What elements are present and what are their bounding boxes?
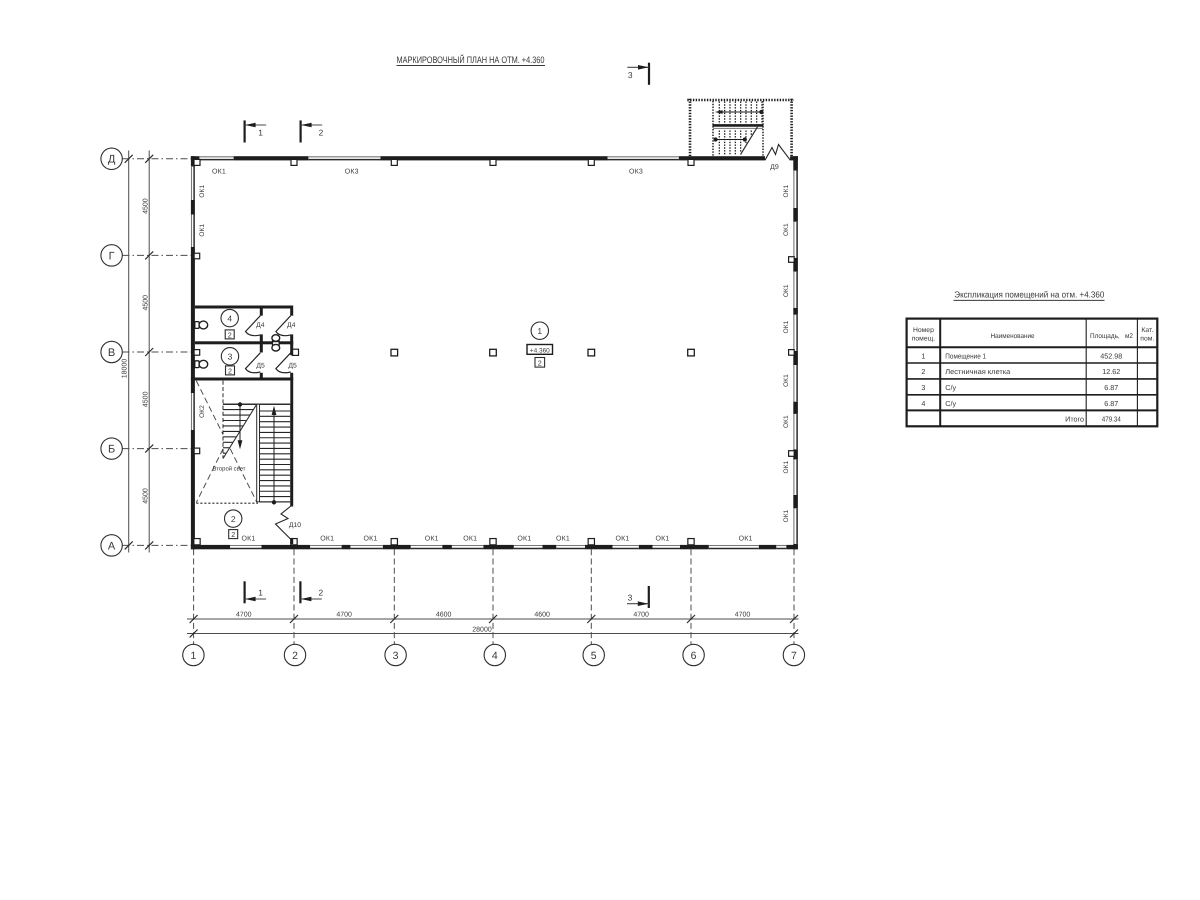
svg-text:1: 1 xyxy=(537,326,542,336)
svg-text:3: 3 xyxy=(921,383,925,392)
svg-text:ОК1: ОК1 xyxy=(783,284,790,297)
svg-text:4: 4 xyxy=(492,650,498,662)
svg-text:МАРКИРОВОЧНЫЙ ПЛАН НА ОТМ. +4.: МАРКИРОВОЧНЫЙ ПЛАН НА ОТМ. +4.360 xyxy=(397,54,545,65)
svg-text:ОК1: ОК1 xyxy=(783,223,790,236)
svg-text:ОК3: ОК3 xyxy=(345,169,359,176)
svg-text:Номер: Номер xyxy=(913,327,934,334)
svg-text:ОК1: ОК1 xyxy=(425,535,439,542)
svg-text:ОК1: ОК1 xyxy=(199,185,206,198)
svg-text:ОК1: ОК1 xyxy=(363,535,377,542)
svg-text:18000: 18000 xyxy=(121,359,128,379)
svg-text:4: 4 xyxy=(921,399,925,408)
svg-text:12.62: 12.62 xyxy=(1102,367,1120,376)
svg-text:ОК1: ОК1 xyxy=(739,535,753,542)
svg-text:4500: 4500 xyxy=(142,488,149,504)
svg-text:3: 3 xyxy=(628,70,633,80)
svg-text:2: 2 xyxy=(292,650,298,662)
svg-text:2: 2 xyxy=(538,358,542,367)
svg-text:4500: 4500 xyxy=(142,391,149,407)
svg-text:2: 2 xyxy=(318,588,323,598)
svg-text:С/у: С/у xyxy=(945,383,956,392)
svg-text:пом.: пом. xyxy=(1140,335,1154,342)
svg-text:4500: 4500 xyxy=(142,295,149,311)
svg-text:479.34: 479.34 xyxy=(1102,414,1121,423)
svg-text:28000: 28000 xyxy=(472,627,492,634)
svg-text:ОК1: ОК1 xyxy=(241,535,255,542)
svg-text:А: А xyxy=(108,540,116,552)
svg-text:Лестничная клетка: Лестничная клетка xyxy=(945,367,1010,376)
svg-text:В: В xyxy=(108,347,115,359)
svg-text:4600: 4600 xyxy=(534,612,550,619)
svg-text:ОК1: ОК1 xyxy=(783,461,790,474)
svg-text:Наименование: Наименование xyxy=(991,333,1035,340)
svg-text:Б: Б xyxy=(108,444,115,456)
svg-text:ОК1: ОК1 xyxy=(212,169,226,176)
svg-text:ОК1: ОК1 xyxy=(783,374,790,387)
svg-text:2: 2 xyxy=(228,366,232,375)
svg-text:Д9: Д9 xyxy=(770,164,779,171)
svg-text:452.98: 452.98 xyxy=(1100,351,1122,360)
svg-text:ОК1: ОК1 xyxy=(783,509,790,522)
svg-text:1: 1 xyxy=(258,128,263,138)
svg-text:+4.360: +4.360 xyxy=(530,347,550,354)
svg-text:С/у: С/у xyxy=(945,399,956,408)
svg-text:3: 3 xyxy=(393,650,399,662)
svg-text:4: 4 xyxy=(227,313,232,323)
svg-text:4700: 4700 xyxy=(735,612,751,619)
svg-text:3: 3 xyxy=(228,352,233,362)
svg-text:4700: 4700 xyxy=(236,612,252,619)
svg-text:4700: 4700 xyxy=(336,612,352,619)
svg-text:Экспликация помещений на отм.: Экспликация помещений на отм. +4.360 xyxy=(954,290,1104,300)
svg-text:Д5: Д5 xyxy=(256,363,265,370)
svg-text:ОК2: ОК2 xyxy=(199,405,206,418)
svg-text:2: 2 xyxy=(319,128,324,138)
svg-text:Д: Д xyxy=(108,154,116,166)
svg-text:ОК1: ОК1 xyxy=(556,535,570,542)
svg-text:Г: Г xyxy=(109,250,115,262)
svg-text:Д4: Д4 xyxy=(287,322,296,329)
svg-text:5: 5 xyxy=(591,650,597,662)
svg-text:ОК1: ОК1 xyxy=(783,185,790,198)
svg-text:1: 1 xyxy=(258,588,263,598)
svg-text:Помещение 1: Помещение 1 xyxy=(945,351,986,360)
svg-text:ОК1: ОК1 xyxy=(463,535,477,542)
svg-text:ОК1: ОК1 xyxy=(517,535,531,542)
svg-text:Д10: Д10 xyxy=(289,522,301,529)
svg-text:ОК1: ОК1 xyxy=(655,535,669,542)
svg-text:3: 3 xyxy=(628,593,633,603)
svg-text:2: 2 xyxy=(231,514,236,524)
svg-text:4700: 4700 xyxy=(633,612,649,619)
svg-text:4600: 4600 xyxy=(436,612,452,619)
svg-text:ОК1: ОК1 xyxy=(320,535,334,542)
svg-text:ОК3: ОК3 xyxy=(629,169,643,176)
svg-text:Д5: Д5 xyxy=(288,363,297,370)
svg-text:1: 1 xyxy=(921,351,925,360)
svg-text:2: 2 xyxy=(231,530,235,539)
svg-text:1: 1 xyxy=(190,650,196,662)
svg-text:ОК1: ОК1 xyxy=(783,415,790,428)
svg-text:6.87: 6.87 xyxy=(1104,399,1118,408)
svg-text:Второй свет: Второй свет xyxy=(213,466,246,473)
svg-text:помещ.: помещ. xyxy=(912,335,936,342)
svg-text:ОК1: ОК1 xyxy=(199,224,206,237)
svg-text:Д4: Д4 xyxy=(256,322,265,329)
svg-text:ОК1: ОК1 xyxy=(783,320,790,333)
svg-text:Площадь, м2: Площадь, м2 xyxy=(1090,333,1133,340)
svg-text:4500: 4500 xyxy=(142,198,149,214)
svg-text:7: 7 xyxy=(791,650,797,662)
svg-text:2: 2 xyxy=(228,330,232,339)
svg-text:6: 6 xyxy=(691,650,697,662)
svg-text:Кат.: Кат. xyxy=(1141,327,1153,334)
svg-text:6.87: 6.87 xyxy=(1104,383,1118,392)
svg-text:ОК1: ОК1 xyxy=(615,535,629,542)
svg-text:Итого: Итого xyxy=(1065,414,1084,423)
svg-text:2: 2 xyxy=(921,367,925,376)
